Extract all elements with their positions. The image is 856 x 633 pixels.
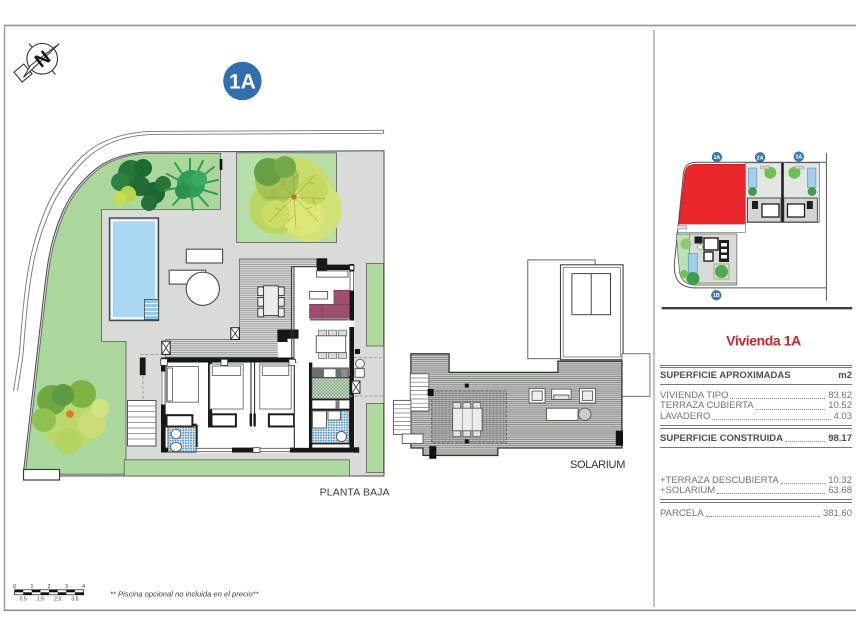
svg-text:2: 2 — [48, 584, 51, 590]
svg-text:0: 0 — [13, 584, 16, 590]
svg-text:1B: 1B — [713, 293, 720, 299]
svg-text:3A: 3A — [795, 155, 802, 161]
svg-text:1: 1 — [30, 584, 33, 590]
svg-text:0.5: 0.5 — [20, 597, 27, 603]
svg-text:1A: 1A — [713, 155, 720, 161]
svg-text:3: 3 — [65, 584, 68, 590]
svg-text:2A: 2A — [757, 155, 764, 161]
svg-text:4: 4 — [82, 584, 85, 590]
svg-text:3.5: 3.5 — [71, 597, 78, 603]
svg-text:PLANTA BAJA: PLANTA BAJA — [320, 487, 390, 498]
svg-text:** Piscina opcional no incluid: ** Piscina opcional no incluida en el pr… — [110, 590, 260, 599]
svg-text:SOLARIUM: SOLARIUM — [570, 459, 625, 471]
svg-text:2.5: 2.5 — [54, 597, 61, 603]
svg-text:1A: 1A — [229, 71, 256, 94]
svg-text:1.5: 1.5 — [37, 597, 44, 603]
